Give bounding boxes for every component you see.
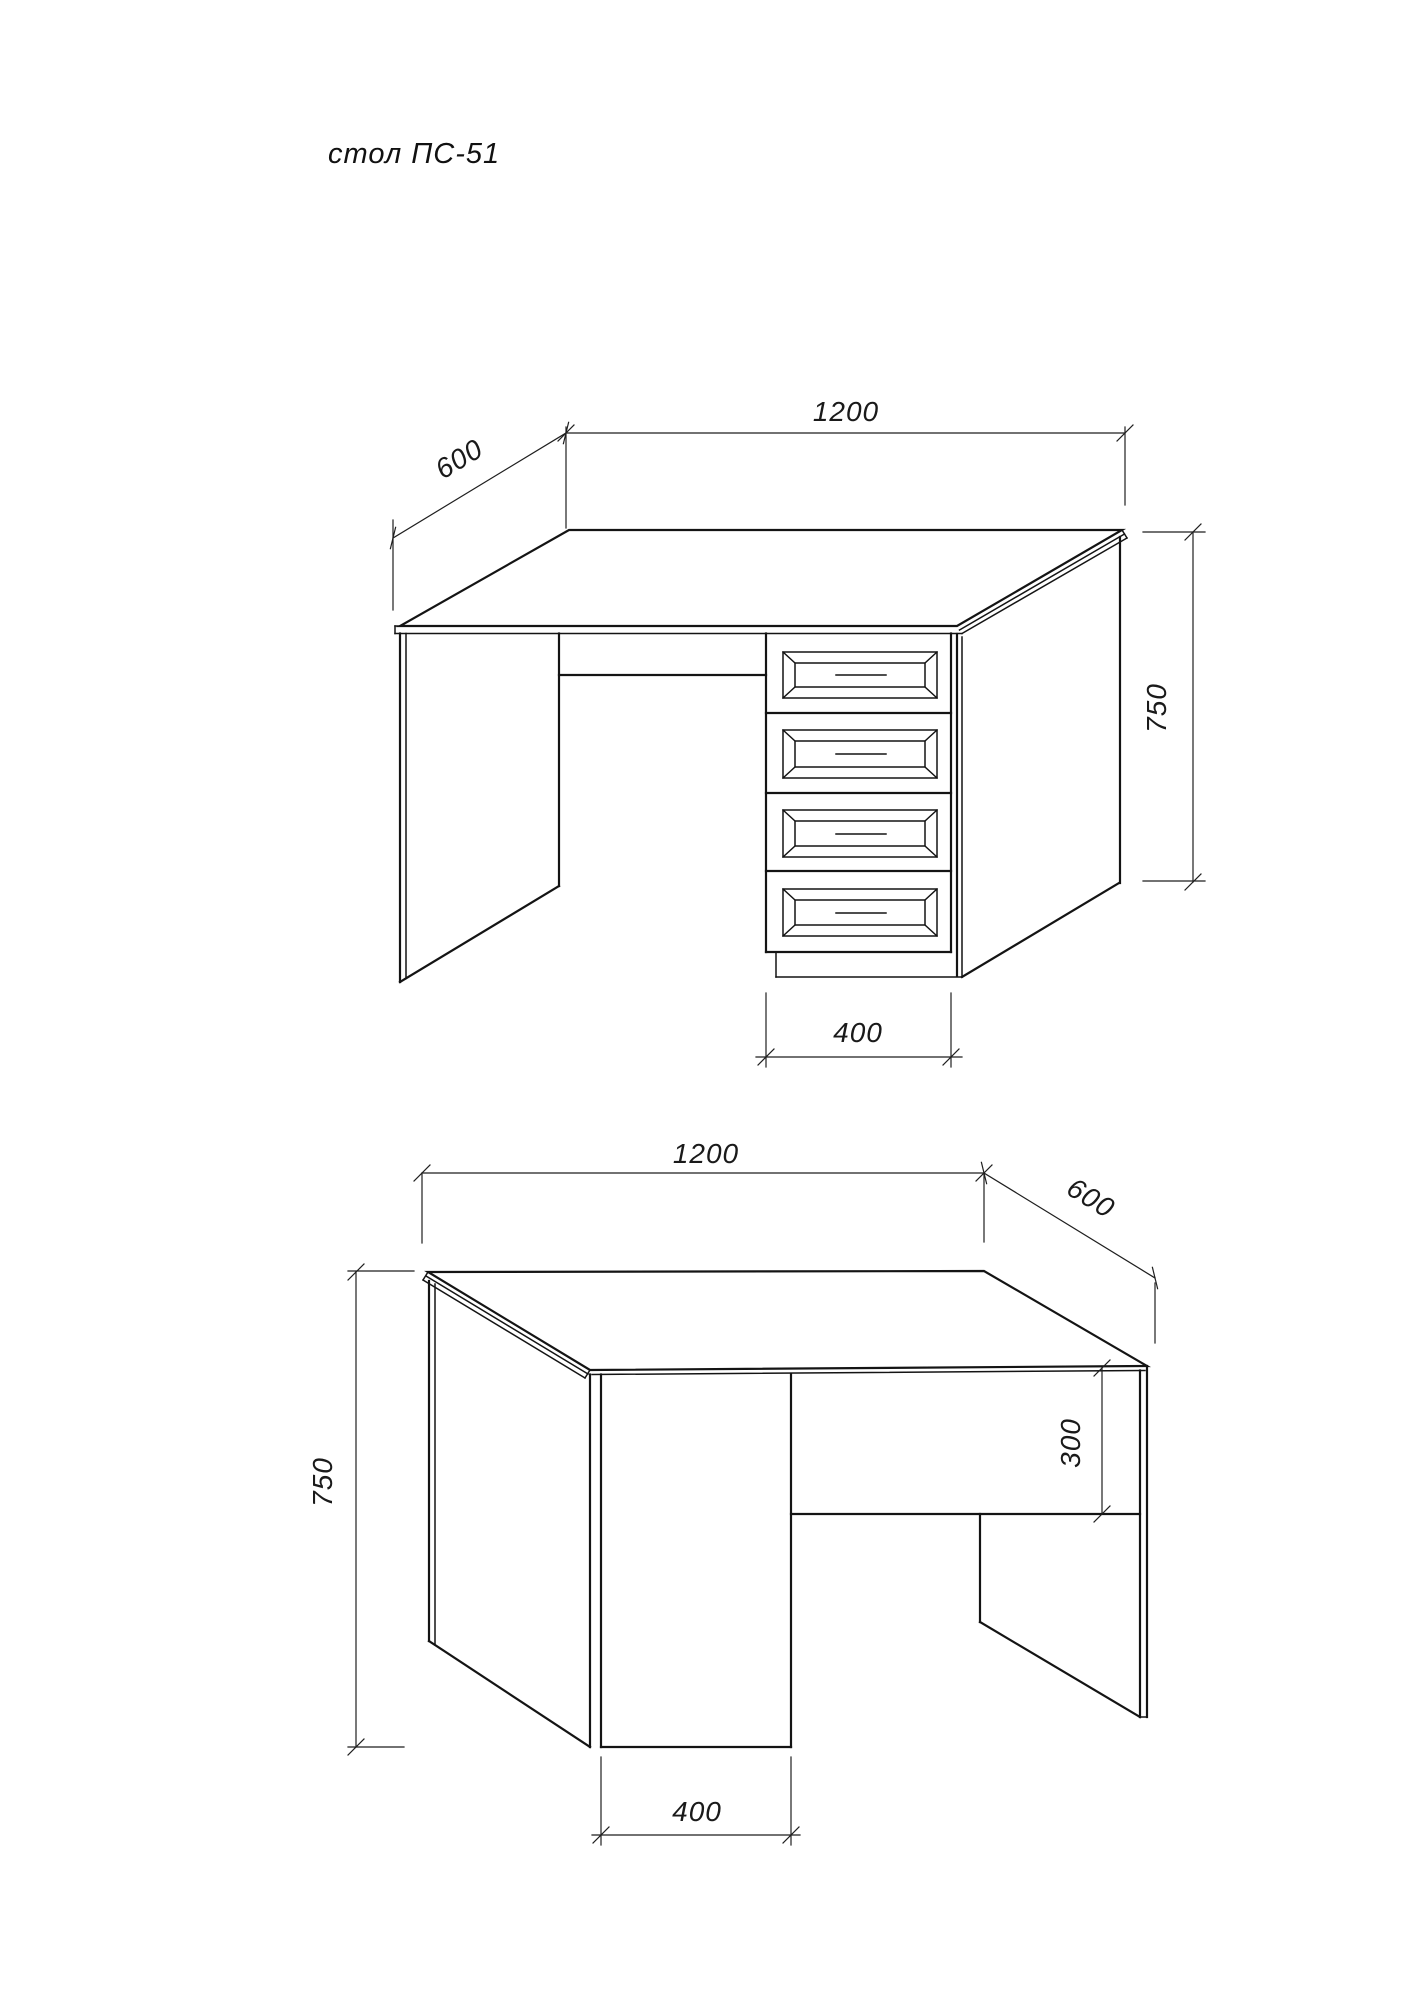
front-drawer-1 — [783, 652, 937, 698]
rear-view: 1200 600 750 300 — [307, 1138, 1158, 1845]
dim-label-front-depth: 600 — [430, 433, 489, 485]
front-dim-height: 750 — [1141, 524, 1205, 890]
front-drawer-3 — [783, 810, 937, 857]
dim-label-rear-pedestal: 400 — [672, 1796, 722, 1827]
drawing-sheet: стол ПС-51 — [0, 0, 1413, 2000]
rear-dim-width: 1200 — [414, 1138, 992, 1243]
rear-drawer-pedestal — [601, 1375, 791, 1748]
front-dim-pedestal: 400 — [756, 993, 962, 1067]
front-dim-width: 1200 — [558, 396, 1133, 528]
dim-label-rear-height: 750 — [307, 1457, 338, 1507]
rear-right-side-panel — [429, 1281, 590, 1747]
rear-dim-height: 750 — [307, 1264, 414, 1755]
front-right-side-panel — [957, 537, 1120, 977]
drawing-title: стол ПС-51 — [328, 138, 500, 170]
dim-label-front-width: 1200 — [813, 396, 879, 427]
front-left-side-panel — [400, 634, 559, 983]
rear-dim-back-panel: 300 — [1055, 1360, 1110, 1522]
front-tabletop — [395, 530, 1127, 634]
dim-label-front-pedestal: 400 — [833, 1017, 883, 1048]
front-drawer-2 — [783, 730, 937, 778]
rear-dim-depth: 600 — [981, 1162, 1157, 1343]
dim-label-rear-depth: 600 — [1062, 1172, 1121, 1224]
front-view: 1200 600 750 400 — [390, 396, 1205, 1067]
dim-label-rear-width: 1200 — [673, 1138, 739, 1169]
dim-label-front-height: 750 — [1141, 683, 1172, 733]
dim-label-rear-back-panel: 300 — [1055, 1418, 1086, 1468]
technical-drawing: стол ПС-51 — [0, 0, 1413, 2000]
rear-dim-pedestal: 400 — [592, 1757, 800, 1845]
rear-tabletop — [423, 1271, 1147, 1378]
front-drawer-4 — [783, 889, 937, 936]
